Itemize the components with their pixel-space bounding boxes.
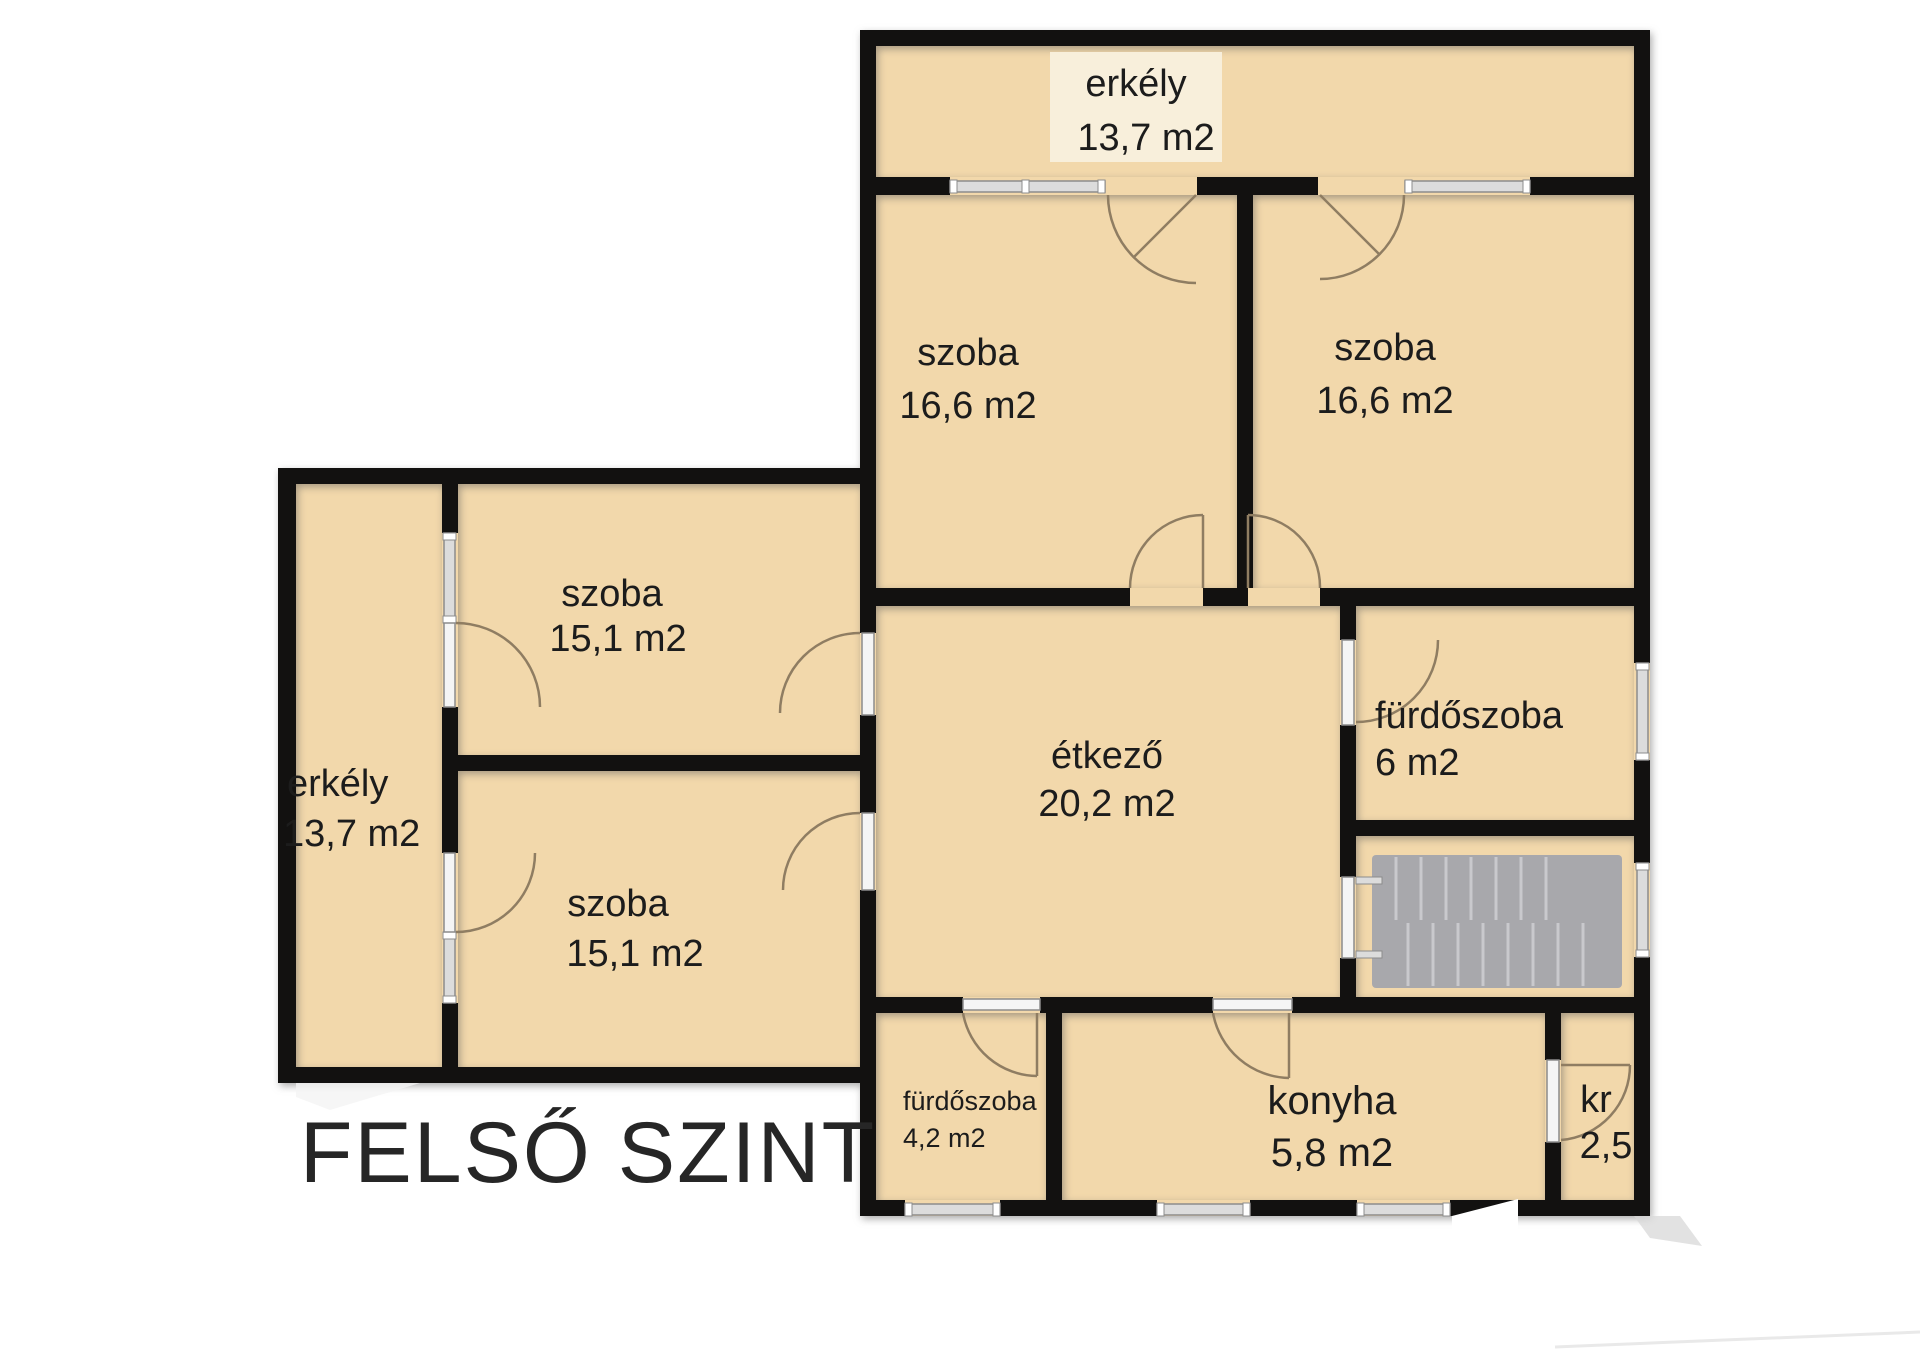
svg-text:szoba: szoba <box>567 883 669 925</box>
bathroom-large-bottom-wall <box>1340 820 1650 836</box>
window <box>443 533 456 623</box>
window <box>905 1203 1000 1216</box>
svg-text:erkély: erkély <box>1085 63 1186 105</box>
left-section-top-wall <box>278 468 876 484</box>
bath-kitchen-divider <box>1046 1013 1062 1216</box>
svg-text:6 m2: 6 m2 <box>1375 742 1459 784</box>
svg-text:13,7 m2: 13,7 m2 <box>283 813 420 855</box>
window <box>1636 863 1649 957</box>
svg-text:20,2 m2: 20,2 m2 <box>1038 783 1175 825</box>
floor-plan: erkély 13,7 m2 szoba 16,6 m2 szoba 16,6 … <box>0 0 1920 1358</box>
svg-text:16,6 m2: 16,6 m2 <box>899 385 1036 427</box>
svg-text:2,5: 2,5 <box>1580 1125 1633 1167</box>
svg-text:5,8 m2: 5,8 m2 <box>1271 1131 1393 1175</box>
svg-text:15,1 m2: 15,1 m2 <box>549 618 686 660</box>
svg-text:fürdőszoba: fürdőszoba <box>903 1086 1038 1116</box>
svg-text:4,2 m2: 4,2 m2 <box>903 1123 986 1153</box>
svg-text:szoba: szoba <box>1334 327 1436 369</box>
svg-text:16,6 m2: 16,6 m2 <box>1316 380 1453 422</box>
outer-wall-right <box>1634 30 1650 1216</box>
svg-text:étkező: étkező <box>1051 735 1163 777</box>
svg-text:15,1 m2: 15,1 m2 <box>566 933 703 975</box>
svg-text:erkély: erkély <box>287 763 388 805</box>
stairs <box>1372 855 1622 988</box>
window <box>1157 1203 1250 1216</box>
plan-title: FELSŐ SZINT <box>300 1105 876 1201</box>
svg-text:kr: kr <box>1580 1079 1612 1121</box>
central-wall <box>860 30 876 1216</box>
svg-text:fürdőszoba: fürdőszoba <box>1375 695 1564 737</box>
top-rooms-divider <box>1237 195 1253 595</box>
svg-text:szoba: szoba <box>561 573 663 615</box>
room-fills <box>296 46 1634 1200</box>
svg-text:konyha: konyha <box>1268 1079 1398 1123</box>
outer-wall-top <box>860 30 1650 46</box>
window <box>443 932 456 1003</box>
window <box>1357 1203 1450 1216</box>
window <box>950 180 1105 193</box>
window <box>1405 180 1530 193</box>
left-rooms-divider <box>442 755 876 771</box>
window <box>1636 663 1649 760</box>
svg-text:13,7 m2: 13,7 m2 <box>1077 117 1214 159</box>
balcony-top-fill <box>876 46 1634 177</box>
svg-text:szoba: szoba <box>917 332 1019 374</box>
left-section-bottom-wall <box>278 1067 876 1083</box>
